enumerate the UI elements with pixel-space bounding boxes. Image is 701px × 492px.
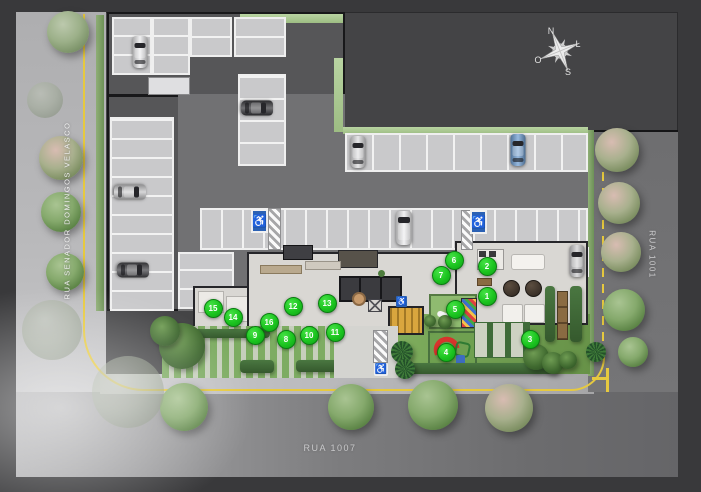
street-name-right: RUA 1001 — [648, 215, 657, 295]
legend-marker-13[interactable]: 13 — [318, 294, 337, 313]
legend-marker-16[interactable]: 16 — [260, 313, 279, 332]
legend-marker-2[interactable]: 2 — [478, 257, 497, 276]
legend-marker-14[interactable]: 14 — [224, 308, 243, 327]
legend-marker-6[interactable]: 6 — [445, 251, 464, 270]
legend-marker-8[interactable]: 8 — [277, 330, 296, 349]
legend-marker-4[interactable]: 4 — [437, 343, 456, 362]
legend-marker-10[interactable]: 10 — [300, 326, 319, 345]
legend-marker-3[interactable]: 3 — [521, 330, 540, 349]
legend-marker-15[interactable]: 15 — [204, 299, 223, 318]
street-name-left: RUA SENADOR DOMINGOS VELASCO — [63, 111, 72, 311]
legend-marker-1[interactable]: 1 — [478, 287, 497, 306]
legend-marker-11[interactable]: 11 — [326, 323, 345, 342]
site-plan-canvas: ♿♿♿♿ N L O S 12345678910111213141516 RUA… — [0, 0, 701, 492]
legend-marker-7[interactable]: 7 — [432, 266, 451, 285]
legend-marker-5[interactable]: 5 — [446, 300, 465, 319]
legend-marker-12[interactable]: 12 — [284, 297, 303, 316]
street-name-bottom: RUA 1007 — [270, 443, 390, 453]
